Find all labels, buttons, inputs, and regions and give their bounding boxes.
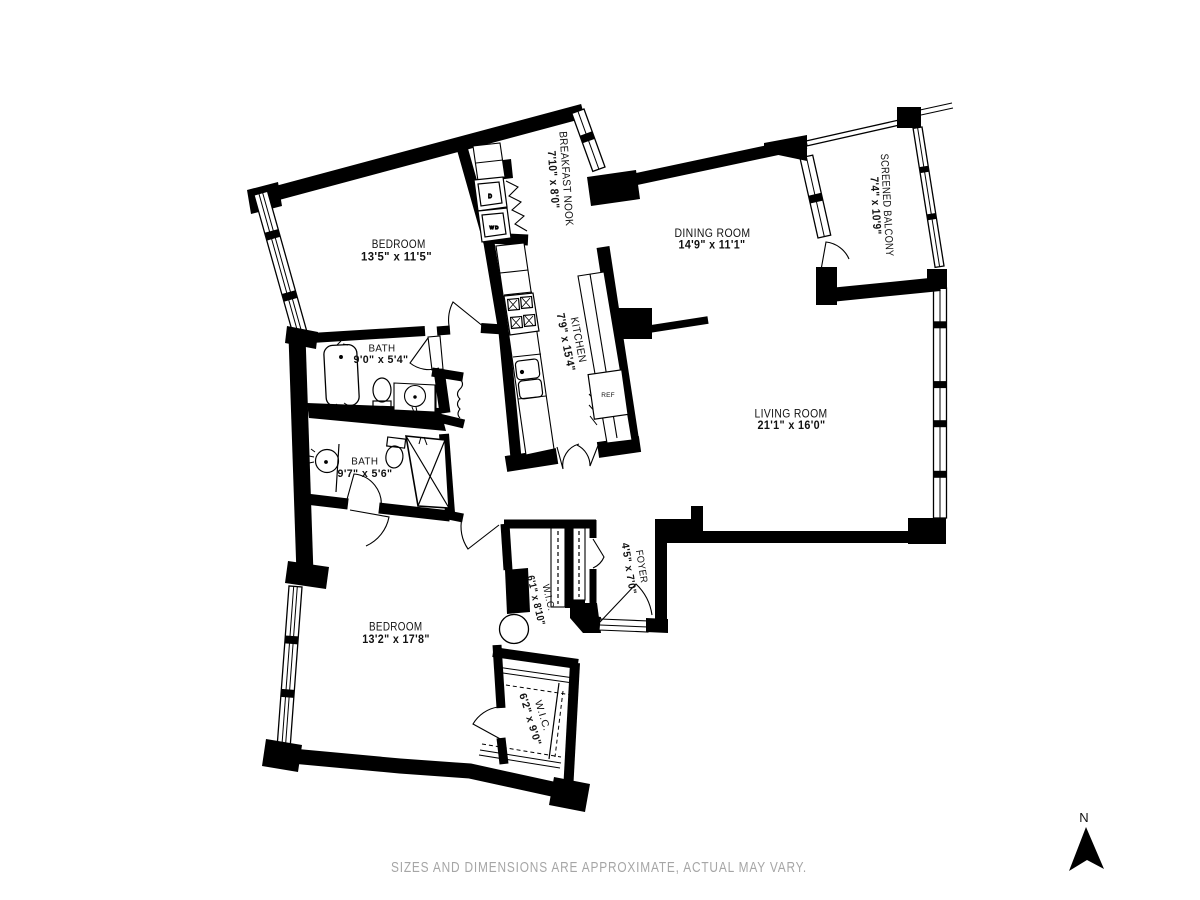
svg-text:REF: REF bbox=[601, 392, 615, 399]
svg-text:N: N bbox=[1079, 810, 1088, 825]
svg-text:21'1" x 16'0": 21'1" x 16'0" bbox=[758, 418, 826, 432]
svg-text:9'7" x 5'6": 9'7" x 5'6" bbox=[338, 468, 393, 480]
svg-text:BATH: BATH bbox=[369, 343, 396, 355]
svg-text:14'9" x 11'1": 14'9" x 11'1" bbox=[679, 238, 746, 252]
svg-text:13'2" x 17'8": 13'2" x 17'8" bbox=[362, 632, 430, 646]
svg-text:SIZES AND DIMENSIONS ARE APPRO: SIZES AND DIMENSIONS ARE APPROXIMATE, AC… bbox=[391, 860, 807, 876]
svg-text:W D: W D bbox=[490, 225, 499, 230]
svg-text:9'0" x 5'4": 9'0" x 5'4" bbox=[354, 354, 409, 366]
svg-text:13'5" x 11'5": 13'5" x 11'5" bbox=[361, 250, 432, 264]
svg-text:BATH: BATH bbox=[351, 456, 378, 468]
svg-text:D: D bbox=[488, 194, 492, 200]
